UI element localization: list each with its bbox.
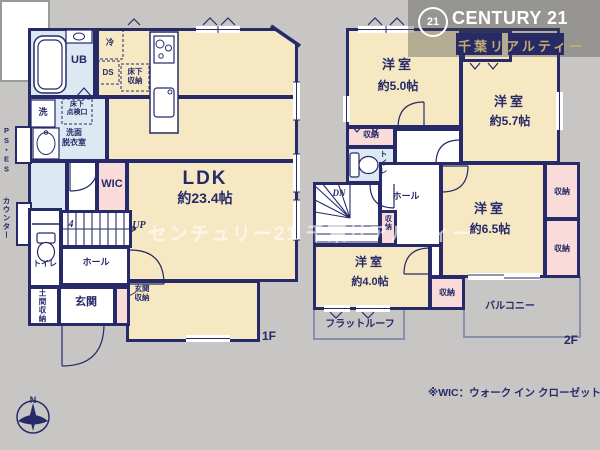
label-underfloor-storage: 床下 収納 [119,67,151,85]
label-ub: UB [62,54,96,67]
label-bedroom50-size: 約5.0帖 [362,79,434,93]
label-bedroom57-size: 約5.7帖 [478,114,542,128]
label-hall-2f: ホール [384,191,428,202]
label-ldk: LDK [160,168,250,191]
label-washer: 洗 [32,107,54,118]
label-entrance: 玄関 [64,296,108,309]
hall-2f-upper [394,128,462,166]
compass-icon: N [17,395,49,433]
label-toilet-2f: トイレ [379,150,388,176]
label-toilet-1f: トイレ [31,259,59,269]
label-ps-es: PS・ES [2,126,11,175]
label-doma-storage: 土間収納 [38,289,47,323]
label-flat-roof: フラットルーフ [318,319,402,331]
label-closet-40: 収納 [434,288,460,298]
ps-shaft [15,126,32,164]
label-ds: DS [96,68,120,78]
label-bedroom65: 洋室 [462,201,518,217]
label-closet-65a: 収納 [549,187,575,197]
room-entrance-storage [114,286,130,326]
brand-logo: 21 CENTURY 21 千葉リアルティー [408,0,600,57]
label-bedroom40-size: 約4.0帖 [340,276,400,289]
label-bedroom57: 洋室 [482,94,538,110]
room-ldk-top [96,28,298,98]
label-wic: WIC [94,178,130,191]
label-closet-50: 収納 [358,130,384,140]
hall-2f-sliver [429,244,442,278]
label-stairs-four: 4 [64,219,78,231]
label-bedroom40: 洋室 [344,255,396,269]
label-hall-1f: ホール [77,257,115,268]
label-washroom: 洗面 脱衣室 [58,128,90,147]
label-dn: DN [328,188,350,199]
label-counter: カウンター [2,197,11,240]
century21-seal-icon: 21 [418,7,448,37]
watermark-text: センチュリー21 千葉リアルティー [148,219,473,246]
brand-name-text: CENTURY 21 [452,8,568,29]
label-bedroom50: 洋室 [368,57,428,73]
label-floor-1f: 1F [262,329,288,343]
wic-footnote: ※WIC：ウォーク イン クローゼット [428,385,600,400]
floor-plan-image: N UB 冷 DS 床下 収納 床下 点検口 洗 洗面 脱衣室 PS・ES カウ… [0,0,600,450]
label-floor-2f: 2F [564,333,592,347]
brand-subtitle-text: 千葉リアルティー [458,36,585,55]
label-balcony: バルコニー [468,301,552,313]
label-refrigerator: 冷 [98,38,122,48]
room-ldk-mid [106,96,298,162]
label-entrance-storage: 玄関 収納 [131,284,153,302]
room-toilet-1f [28,208,62,288]
room-corridor-blue [28,160,68,214]
compass-north-label: N [30,395,37,405]
label-ldk-size: 約23.4帖 [150,190,260,207]
label-closet-65b: 収納 [549,244,575,254]
label-inspection-port: 床下 点検口 [60,101,94,118]
